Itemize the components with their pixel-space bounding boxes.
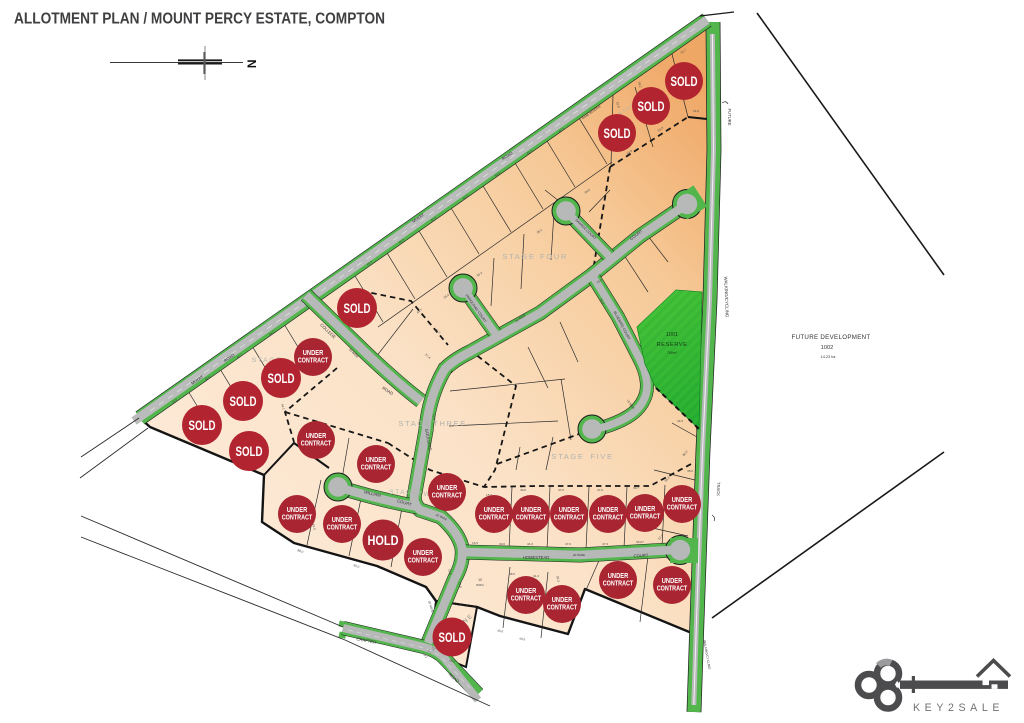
svg-text:45.0: 45.0 [497, 629, 504, 634]
svg-text:CONTRACT: CONTRACT [301, 441, 332, 448]
svg-text:SOLD: SOLD [638, 98, 665, 114]
svg-text:16.5: 16.5 [472, 541, 478, 545]
svg-text:UNDER: UNDER [598, 507, 619, 514]
svg-text:CONTRACT: CONTRACT [554, 515, 585, 522]
svg-text:WALKING/CYCLING: WALKING/CYCLING [702, 640, 711, 670]
svg-text:44.9: 44.9 [677, 419, 683, 423]
svg-text:SOLD: SOLD [230, 393, 257, 409]
svg-text:SOLD: SOLD [604, 125, 631, 141]
svg-text:ALLOTMENT PLAN / MOUNT PERCY E: ALLOTMENT PLAN / MOUNT PERCY ESTATE, COM… [14, 11, 385, 28]
svg-text:CONTRACT: CONTRACT [479, 515, 510, 522]
svg-text:CONTRACT: CONTRACT [603, 581, 634, 588]
svg-text:STAGE: STAGE [389, 489, 419, 496]
svg-text:14.23 ha: 14.23 ha [821, 355, 837, 359]
svg-text:45.0: 45.0 [687, 469, 693, 473]
svg-text:UNDER: UNDER [413, 550, 434, 557]
svg-text:21.8: 21.8 [693, 109, 699, 113]
svg-text:48.5: 48.5 [509, 572, 515, 576]
svg-text:UNDER: UNDER [608, 573, 629, 580]
svg-text:95.07: 95.07 [636, 540, 644, 544]
svg-text:30.7: 30.7 [633, 486, 639, 490]
svg-text:10: 10 [478, 578, 482, 582]
svg-text:CONTRACT: CONTRACT [511, 596, 542, 603]
svg-text:20 WIDE: 20 WIDE [573, 553, 585, 557]
svg-text:789m²: 789m² [667, 351, 678, 355]
svg-text:50.0: 50.0 [353, 563, 360, 569]
svg-text:TRACK: TRACK [716, 482, 721, 497]
svg-text:UNDER: UNDER [662, 578, 683, 585]
svg-text:N: N [245, 60, 259, 69]
svg-text:HOMESTEAD: HOMESTEAD [523, 555, 550, 560]
svg-text:47.0: 47.0 [558, 488, 564, 492]
svg-text:CONTRACT: CONTRACT [547, 605, 578, 612]
svg-text:1001: 1001 [666, 332, 678, 338]
svg-text:FOUR: FOUR [540, 252, 568, 261]
svg-text:44.3: 44.3 [527, 542, 533, 546]
svg-text:47.9: 47.9 [602, 542, 608, 546]
svg-text:HOLD: HOLD [368, 533, 399, 548]
svg-text:UNDER: UNDER [552, 597, 573, 604]
svg-text:47.0: 47.0 [597, 488, 603, 492]
svg-text:SOLD: SOLD [439, 629, 466, 645]
svg-text:40.0: 40.0 [519, 637, 526, 642]
svg-text:STAGE: STAGE [551, 452, 584, 461]
svg-text:31.3: 31.3 [533, 574, 539, 578]
svg-text:SOLD: SOLD [189, 417, 216, 433]
svg-text:UNDER: UNDER [303, 350, 324, 357]
svg-text:3528m²: 3528m² [476, 584, 484, 587]
svg-text:CONTRACT: CONTRACT [516, 515, 547, 522]
svg-text:CONTRACT: CONTRACT [408, 558, 439, 565]
svg-text:CONTRACT: CONTRACT [432, 493, 463, 500]
svg-text:1002: 1002 [821, 345, 833, 351]
svg-text:KEY2SALE: KEY2SALE [913, 702, 1004, 714]
svg-text:COURT: COURT [633, 553, 648, 559]
svg-text:UNDER: UNDER [672, 497, 693, 504]
svg-text:UNDER: UNDER [484, 507, 505, 514]
svg-text:SOLD: SOLD [344, 300, 371, 316]
svg-text:20 WIDE: 20 WIDE [427, 600, 435, 613]
svg-text:CONTRACT: CONTRACT [657, 586, 688, 593]
svg-text:SOLD: SOLD [671, 73, 698, 89]
svg-text:CONTRACT: CONTRACT [282, 515, 313, 522]
svg-text:THREE: THREE [433, 419, 467, 428]
svg-text:UNDER: UNDER [516, 588, 537, 595]
svg-text:UNDER: UNDER [521, 507, 542, 514]
svg-text:CONTRACT: CONTRACT [361, 465, 392, 472]
svg-text:UNDER: UNDER [437, 485, 458, 492]
svg-text:STAGE: STAGE [502, 252, 535, 261]
svg-text:UNDER: UNDER [332, 517, 353, 524]
svg-text:30.0: 30.0 [499, 542, 505, 546]
svg-text:FUTURE: FUTURE [727, 109, 732, 126]
svg-text:WALKING/CYCLING: WALKING/CYCLING [723, 276, 729, 318]
svg-text:UNDER: UNDER [635, 506, 656, 513]
svg-text:UNDER: UNDER [306, 433, 327, 440]
svg-text:CONTRACT: CONTRACT [298, 358, 329, 365]
svg-text:UNDER: UNDER [287, 507, 308, 514]
svg-text:CONTRACT: CONTRACT [327, 525, 358, 532]
svg-text:CONTRACT: CONTRACT [630, 514, 661, 521]
svg-text:40.0: 40.0 [520, 488, 526, 492]
svg-text:SOLD: SOLD [236, 443, 263, 459]
svg-text:UNDER: UNDER [366, 457, 387, 464]
svg-text:STAGE: STAGE [398, 419, 431, 428]
svg-text:47.0: 47.0 [565, 542, 571, 546]
svg-text:FIVE: FIVE [590, 452, 613, 461]
svg-text:FUTURE DEVELOPMENT: FUTURE DEVELOPMENT [792, 334, 871, 341]
svg-text:RESERVE: RESERVE [656, 342, 687, 348]
svg-text:88.0: 88.0 [297, 548, 304, 554]
svg-text:SOLD: SOLD [268, 370, 295, 386]
svg-text:CONTRACT: CONTRACT [593, 515, 624, 522]
svg-text:UNDER: UNDER [559, 507, 580, 514]
svg-text:CONTRACT: CONTRACT [667, 505, 698, 512]
